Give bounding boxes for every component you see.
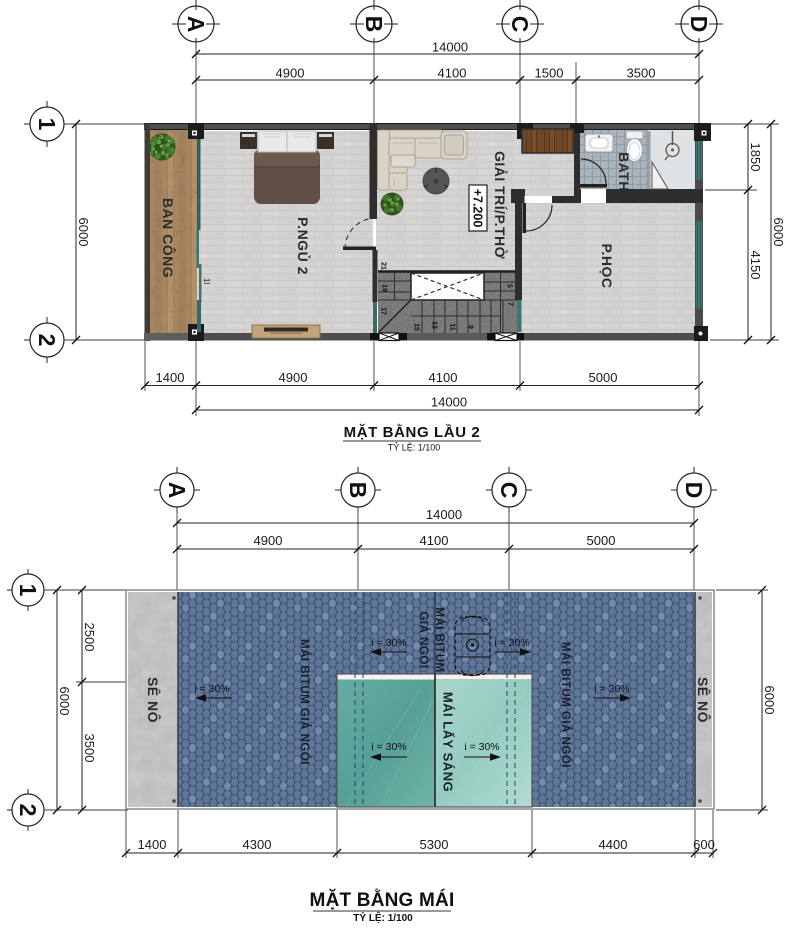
svg-text:13: 13 <box>431 321 438 329</box>
svg-text:MÁI BITUM GIẢ NGÓI: MÁI BITUM GIẢ NGÓI <box>298 639 311 765</box>
svg-text:14000: 14000 <box>426 507 462 522</box>
svg-text:4900: 4900 <box>254 533 283 548</box>
svg-text:5300: 5300 <box>420 837 449 852</box>
svg-text:9: 9 <box>467 325 474 329</box>
svg-text:1400: 1400 <box>156 370 185 385</box>
svg-text:MẶT BẰNG LẦU 2: MẶT BẰNG LẦU 2 <box>344 423 481 441</box>
svg-text:2: 2 <box>15 804 41 817</box>
svg-text:MẶT BẰNG MÁI: MẶT BẰNG MÁI <box>310 889 455 911</box>
svg-text:6000: 6000 <box>57 687 72 716</box>
svg-text:P.NGỦ 2: P.NGỦ 2 <box>295 217 312 275</box>
svg-text:6000: 6000 <box>76 218 91 247</box>
svg-text:1500: 1500 <box>535 66 564 81</box>
svg-text:A: A <box>183 16 209 33</box>
svg-text:MÁI BITUM: MÁI BITUM <box>433 607 446 672</box>
svg-text:MÁI BITUM GIẢ NGÓI: MÁI BITUM GIẢ NGÓI <box>559 642 572 768</box>
svg-text:TỶ LỆ: 1/100: TỶ LỆ: 1/100 <box>353 911 413 924</box>
svg-text:GIẢ NGÓI: GIẢ NGÓI <box>417 611 430 668</box>
svg-text:GIẢI TRÍ/P.THỜ: GIẢI TRÍ/P.THỜ <box>492 151 509 259</box>
svg-text:A: A <box>164 482 190 499</box>
svg-text:2: 2 <box>34 334 60 347</box>
svg-text:4100: 4100 <box>438 66 467 81</box>
svg-text:i = 30%: i = 30% <box>371 741 406 753</box>
svg-text:6000: 6000 <box>771 218 786 247</box>
svg-text:i = 30%: i = 30% <box>594 683 629 695</box>
svg-text:TỶ LỆ: 1/100: TỶ LỆ: 1/100 <box>388 442 441 453</box>
svg-text:1400: 1400 <box>138 837 167 852</box>
svg-text:BAN CÔNG: BAN CÔNG <box>160 198 177 278</box>
svg-text:3500: 3500 <box>627 66 656 81</box>
svg-text:4150: 4150 <box>748 251 763 280</box>
svg-text:4900: 4900 <box>276 66 305 81</box>
svg-text:14000: 14000 <box>432 40 468 55</box>
svg-text:B: B <box>345 482 371 499</box>
svg-text:4900: 4900 <box>279 370 308 385</box>
svg-text:i = 30%: i = 30% <box>194 683 229 695</box>
svg-text:15: 15 <box>413 323 420 331</box>
svg-text:5000: 5000 <box>587 533 616 548</box>
svg-text:SÊ NÔ: SÊ NÔ <box>695 677 712 723</box>
svg-text:4400: 4400 <box>599 837 628 852</box>
svg-text:i = 30%: i = 30% <box>494 637 529 649</box>
svg-text:i = 30%: i = 30% <box>371 637 406 649</box>
svg-text:B: B <box>361 16 387 33</box>
svg-text:2500: 2500 <box>82 623 97 652</box>
svg-text:C: C <box>507 16 533 33</box>
svg-text:5: 5 <box>506 284 513 288</box>
svg-text:17: 17 <box>380 307 387 315</box>
svg-text:21: 21 <box>380 262 387 270</box>
svg-text:4100: 4100 <box>420 533 449 548</box>
svg-text:5000: 5000 <box>589 370 618 385</box>
svg-text:C: C <box>496 482 522 499</box>
svg-text:+7.200: +7.200 <box>471 189 485 228</box>
svg-text:D: D <box>686 16 712 33</box>
svg-text:600: 600 <box>693 837 715 852</box>
svg-text:6000: 6000 <box>762 686 777 715</box>
svg-text:3500: 3500 <box>82 734 97 763</box>
svg-text:1850: 1850 <box>748 143 763 172</box>
svg-text:P.HỌC: P.HỌC <box>599 243 615 288</box>
svg-text:MÁI LẤY SÁNG: MÁI LẤY SÁNG <box>441 692 456 792</box>
svg-text:11: 11 <box>449 323 456 331</box>
svg-text:SÊ NÔ: SÊ NÔ <box>145 677 162 723</box>
svg-text:D: D <box>681 482 707 499</box>
svg-text:BATH: BATH <box>616 152 632 192</box>
svg-text:4100: 4100 <box>429 370 458 385</box>
svg-text:i = 30%: i = 30% <box>464 741 499 753</box>
svg-text:1: 1 <box>34 118 60 131</box>
svg-text:4300: 4300 <box>243 837 272 852</box>
svg-text:14000: 14000 <box>431 395 467 410</box>
svg-text:1l: 1l <box>202 278 211 284</box>
svg-text:19: 19 <box>381 284 388 292</box>
svg-text:7: 7 <box>507 302 514 306</box>
svg-text:1: 1 <box>15 584 41 597</box>
